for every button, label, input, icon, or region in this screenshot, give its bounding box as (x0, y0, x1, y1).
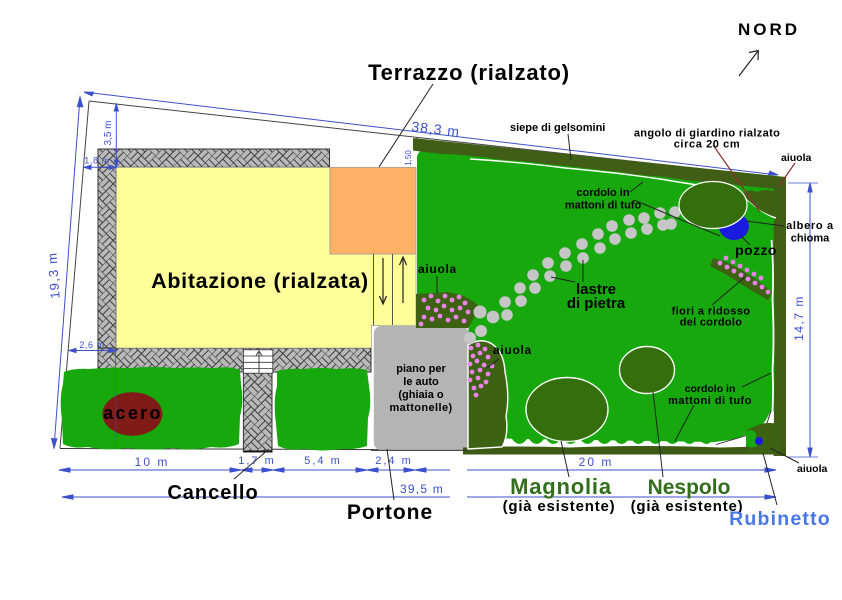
svg-text:mattoni di tufo: mattoni di tufo (668, 395, 752, 407)
svg-text:1,7 m: 1,7 m (238, 455, 276, 467)
svg-text:(già esistente): (già esistente) (503, 498, 616, 515)
svg-text:14,7 m: 14,7 m (792, 295, 806, 341)
svg-text:circa 20 cm: circa 20 cm (674, 139, 741, 151)
svg-text:1,50: 1,50 (404, 150, 413, 166)
svg-text:3,5 m: 3,5 m (103, 120, 114, 145)
svg-text:albero a: albero a (786, 220, 834, 232)
svg-text:cordolo in: cordolo in (685, 383, 736, 395)
svg-text:1,8 m: 1,8 m (84, 156, 110, 166)
svg-text:le auto: le auto (403, 376, 439, 388)
svg-text:20 m: 20 m (579, 455, 614, 469)
svg-text:Nespolo: Nespolo (648, 476, 731, 499)
svg-text:aiuola: aiuola (493, 343, 532, 357)
svg-text:pozzo: pozzo (735, 242, 777, 258)
svg-text:acero: acero (103, 403, 163, 423)
svg-text:chioma: chioma (791, 233, 830, 245)
svg-text:39,5 m: 39,5 m (400, 482, 444, 496)
svg-text:5,4 m: 5,4 m (304, 455, 342, 467)
svg-text:mattoni di tufo: mattoni di tufo (565, 200, 642, 212)
svg-text:Rubinetto: Rubinetto (729, 508, 831, 530)
svg-text:2,4 m: 2,4 m (375, 455, 413, 467)
svg-text:piano per: piano per (396, 363, 446, 375)
svg-text:aiuola: aiuola (418, 262, 457, 276)
svg-text:Abitazione (rialzata): Abitazione (rialzata) (151, 269, 369, 293)
svg-text:NORD: NORD (738, 20, 800, 39)
svg-text:Magnolia: Magnolia (510, 474, 612, 499)
svg-text:aiuola: aiuola (781, 152, 812, 164)
svg-text:Terrazzo (rialzato): Terrazzo (rialzato) (368, 60, 570, 85)
svg-text:Cancello: Cancello (167, 482, 258, 504)
svg-text:di pietra: di pietra (567, 295, 626, 312)
svg-text:10 m: 10 m (135, 455, 170, 469)
svg-text:Portone: Portone (347, 501, 433, 524)
svg-text:(ghiaia o: (ghiaia o (398, 389, 444, 401)
svg-text:2,6 m: 2,6 m (79, 340, 105, 350)
svg-text:mattonelle): mattonelle) (389, 402, 452, 414)
svg-text:(già esistente): (già esistente) (631, 498, 744, 515)
svg-text:del cordolo: del cordolo (680, 317, 743, 329)
svg-text:aiuola: aiuola (797, 463, 828, 475)
svg-text:cordolo in: cordolo in (576, 187, 629, 199)
svg-text:siepe di gelsomini: siepe di gelsomini (510, 122, 605, 134)
